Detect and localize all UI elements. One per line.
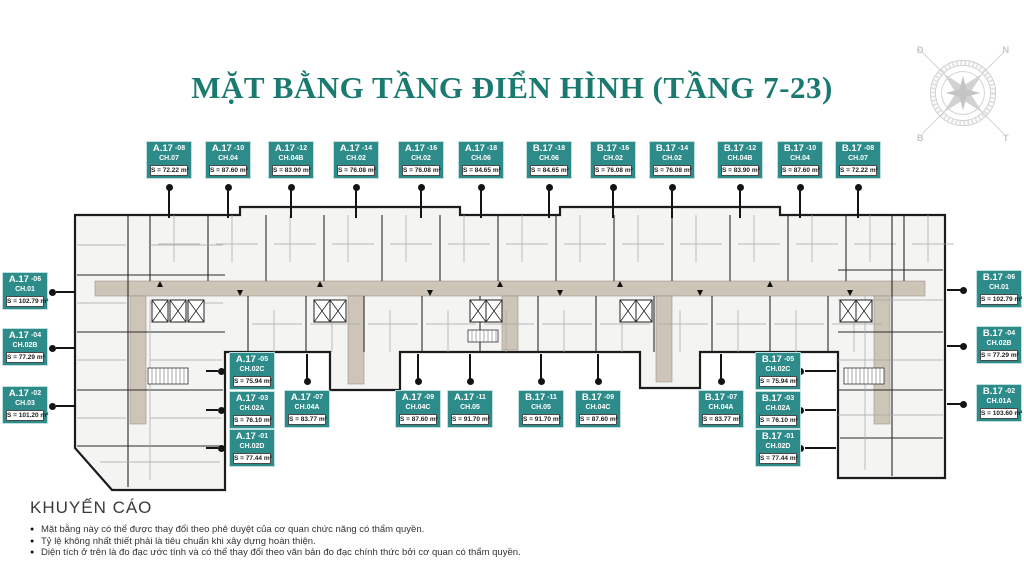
unit-label-B17-05: B.17-05CH.02CS = 75.94 m² [755, 352, 801, 390]
apartment-number: CH.04B [719, 155, 761, 163]
unit-area: S = 76.08 m² [337, 165, 375, 176]
unit-label-A17-03: A.17-03CH.02AS = 76.10 m² [229, 391, 275, 429]
unit-area: S = 87.60 m² [781, 165, 819, 176]
apartment-number: CH.02D [231, 443, 273, 451]
unit-area: S = 77.44 m² [233, 453, 271, 464]
unit-code: A.17-14 [335, 144, 377, 154]
unit-code: A.17-06 [4, 275, 46, 285]
apartment-number: CH.06 [528, 155, 570, 163]
leader-line [947, 345, 963, 347]
unit-code: B.17-07 [700, 393, 742, 403]
unit-label-A17-05: A.17-05CH.02CS = 75.94 m² [229, 352, 275, 390]
unit-code: A.17-16 [400, 144, 442, 154]
apartment-number: CH.02B [978, 340, 1020, 348]
apartment-number: CH.04A [700, 404, 742, 412]
unit-area: S = 87.60 m² [209, 165, 247, 176]
compass-letter-bac: B [917, 133, 924, 143]
unit-area: S = 101.20 m² [6, 410, 44, 421]
unit-label-B17-07: B.17-07CH.04AS = 83.77 m² [698, 390, 744, 428]
apartment-number: CH.01 [4, 286, 46, 294]
leader-line [56, 405, 76, 407]
unit-area: S = 76.10 m² [233, 415, 271, 426]
unit-code: B.17-08 [837, 144, 879, 154]
unit-area: S = 76.08 m² [653, 165, 691, 176]
unit-label-B17-16: B.17-16CH.02S = 76.08 m² [590, 141, 636, 179]
leader-line [720, 354, 722, 379]
leader-line [355, 190, 357, 218]
leader-line [671, 190, 673, 218]
unit-code: A.17-12 [270, 144, 312, 154]
unit-label-B17-04: B.17-04CH.02BS = 77.29 m² [976, 326, 1022, 364]
unit-label-A17-08: A.17-08CH.07S = 72.22 m² [146, 141, 192, 179]
unit-area: S = 77.29 m² [980, 350, 1018, 361]
unit-label-A17-04: A.17-04CH.02BS = 77.29 m² [2, 328, 48, 366]
unit-code: A.17-03 [231, 394, 273, 404]
unit-code: A.17-10 [207, 144, 249, 154]
unit-label-B17-01: B.17-01CH.02DS = 77.44 m² [755, 429, 801, 467]
unit-label-A17-10: A.17-10CH.04S = 87.60 m² [205, 141, 251, 179]
leader-line [206, 409, 218, 411]
unit-code: B.17-14 [651, 144, 693, 154]
unit-code: B.17-11 [520, 393, 562, 403]
leader-line [56, 347, 76, 349]
apartment-number: CH.07 [837, 155, 879, 163]
unit-code: A.17-11 [449, 393, 491, 403]
unit-code: A.17-02 [4, 389, 46, 399]
apartment-number: CH.02 [592, 155, 634, 163]
compass-icon: Đ N B T [912, 42, 1014, 144]
leader-line [805, 447, 836, 449]
unit-code: B.17-12 [719, 144, 761, 154]
apartment-number: CH.01 [978, 284, 1020, 292]
leader-dot [218, 368, 225, 375]
leader-dot [218, 407, 225, 414]
unit-area: S = 84.65 m² [462, 165, 500, 176]
unit-area: S = 77.29 m² [6, 352, 44, 363]
leader-line [739, 190, 741, 218]
disclaimer-item: Mặt bằng này có thể được thay đổi theo p… [30, 524, 521, 536]
compass-letter-tay: T [1003, 133, 1009, 143]
leader-line [548, 190, 550, 218]
leader-line [206, 447, 218, 449]
unit-code: B.17-10 [779, 144, 821, 154]
unit-label-A17-07: A.17-07CH.04AS = 83.77 m² [284, 390, 330, 428]
disclaimer-item: Tỷ lệ không nhất thiết phải là tiêu chuẩ… [30, 536, 521, 548]
leader-line [420, 190, 422, 218]
unit-area: S = 75.94 m² [233, 376, 271, 387]
leader-dot [49, 289, 56, 296]
apartment-number: CH.04A [286, 404, 328, 412]
building-floor-plan [0, 0, 1024, 564]
unit-area: S = 72.22 m² [839, 165, 877, 176]
unit-code: B.17-16 [592, 144, 634, 154]
unit-code: B.17-02 [978, 387, 1020, 397]
apartment-number: CH.02 [400, 155, 442, 163]
apartment-number: CH.02B [4, 342, 46, 350]
unit-area: S = 77.44 m² [759, 453, 797, 464]
unit-code: B.17-05 [757, 355, 799, 365]
unit-code: B.17-03 [757, 394, 799, 404]
apartment-number: CH.04 [207, 155, 249, 163]
unit-label-A17-11: A.17-11CH.05S = 91.70 m² [447, 390, 493, 428]
disclaimer-heading: KHUYẾN CÁO [30, 498, 521, 518]
unit-label-A17-06: A.17-06CH.01S = 102.79 m² [2, 272, 48, 310]
compass-letter-north: N [1003, 45, 1010, 55]
leader-dot [49, 345, 56, 352]
unit-code: A.17-04 [4, 331, 46, 341]
leader-line [306, 354, 308, 379]
unit-label-B17-12: B.17-12CH.04BS = 83.90 m² [717, 141, 763, 179]
floor-plan-page: MẶT BẰNG TẦNG ĐIỂN HÌNH (TẦNG 7-23) Đ N … [0, 0, 1024, 564]
apartment-number: CH.02 [335, 155, 377, 163]
unit-label-B17-09: B.17-09CH.04CS = 87.60 m² [575, 390, 621, 428]
leader-line [597, 354, 599, 379]
unit-label-A17-02: A.17-02CH.03S = 101.20 m² [2, 386, 48, 424]
unit-area: S = 76.10 m² [759, 415, 797, 426]
unit-label-A17-14: A.17-14CH.02S = 76.08 m² [333, 141, 379, 179]
unit-label-B17-06: B.17-06CH.01S = 102.79 m² [976, 270, 1022, 308]
unit-code: A.17-05 [231, 355, 273, 365]
unit-area: S = 72.22 m² [150, 165, 188, 176]
unit-code: B.17-04 [978, 329, 1020, 339]
compass-letter-dong: Đ [917, 45, 924, 55]
unit-code: A.17-07 [286, 393, 328, 403]
unit-area: S = 84.65 m² [530, 165, 568, 176]
leader-line [799, 190, 801, 218]
leader-line [168, 190, 170, 218]
unit-label-B17-08: B.17-08CH.07S = 72.22 m² [835, 141, 881, 179]
apartment-number: CH.02 [651, 155, 693, 163]
unit-area: S = 102.79 m² [6, 296, 44, 307]
apartment-number: CH.02A [231, 405, 273, 413]
unit-code: B.17-09 [577, 393, 619, 403]
unit-label-B17-18: B.17-18CH.06S = 84.65 m² [526, 141, 572, 179]
apartment-number: CH.02C [757, 366, 799, 374]
leader-line [469, 354, 471, 379]
disclaimer: KHUYẾN CÁO Mặt bằng này có thể được thay… [30, 498, 521, 559]
leader-line [612, 190, 614, 218]
unit-area: S = 83.77 m² [702, 414, 740, 425]
unit-area: S = 103.60 m² [980, 408, 1018, 419]
disclaimer-list: Mặt bằng này có thể được thay đổi theo p… [30, 524, 521, 559]
leader-line [805, 409, 836, 411]
leader-line [227, 190, 229, 218]
unit-label-A17-09: A.17-09CH.04CS = 87.60 m² [395, 390, 441, 428]
leader-line [290, 190, 292, 218]
unit-area: S = 83.77 m² [288, 414, 326, 425]
leader-dot [49, 403, 56, 410]
unit-area: S = 75.94 m² [759, 376, 797, 387]
leader-line [56, 291, 76, 293]
unit-area: S = 83.90 m² [272, 165, 310, 176]
unit-code: B.17-01 [757, 432, 799, 442]
unit-code: A.17-18 [460, 144, 502, 154]
disclaimer-item: Diện tích ở trên là đo đạc ước tính và c… [30, 547, 521, 559]
leader-line [540, 354, 542, 379]
apartment-number: CH.04 [779, 155, 821, 163]
unit-label-A17-12: A.17-12CH.04BS = 83.90 m² [268, 141, 314, 179]
apartment-number: CH.04C [397, 404, 439, 412]
unit-code: B.17-06 [978, 273, 1020, 283]
apartment-number: CH.02A [757, 405, 799, 413]
apartment-number: CH.07 [148, 155, 190, 163]
unit-label-A17-16: A.17-16CH.02S = 76.08 m² [398, 141, 444, 179]
unit-code: B.17-18 [528, 144, 570, 154]
apartment-number: CH.02C [231, 366, 273, 374]
unit-code: A.17-08 [148, 144, 190, 154]
unit-area: S = 91.70 m² [522, 414, 560, 425]
leader-line [947, 403, 963, 405]
unit-area: S = 87.60 m² [579, 414, 617, 425]
unit-code: A.17-09 [397, 393, 439, 403]
unit-area: S = 76.08 m² [594, 165, 632, 176]
unit-area: S = 87.60 m² [399, 414, 437, 425]
apartment-number: CH.03 [4, 400, 46, 408]
unit-label-B17-03: B.17-03CH.02AS = 76.10 m² [755, 391, 801, 429]
leader-line [417, 354, 419, 379]
unit-label-B17-11: B.17-11CH.05S = 91.70 m² [518, 390, 564, 428]
unit-label-B17-10: B.17-10CH.04S = 87.60 m² [777, 141, 823, 179]
unit-area: S = 102.79 m² [980, 294, 1018, 305]
apartment-number: CH.02D [757, 443, 799, 451]
unit-area: S = 76.08 m² [402, 165, 440, 176]
apartment-number: CH.06 [460, 155, 502, 163]
unit-label-B17-14: B.17-14CH.02S = 76.08 m² [649, 141, 695, 179]
leader-line [480, 190, 482, 218]
leader-line [206, 370, 218, 372]
apartment-number: CH.01A [978, 398, 1020, 406]
apartment-number: CH.05 [520, 404, 562, 412]
leader-dot [218, 445, 225, 452]
leader-line [947, 289, 963, 291]
apartment-number: CH.04C [577, 404, 619, 412]
apartment-number: CH.05 [449, 404, 491, 412]
leader-line [857, 190, 859, 218]
unit-code: A.17-01 [231, 432, 273, 442]
unit-label-A17-18: A.17-18CH.06S = 84.65 m² [458, 141, 504, 179]
leader-line [805, 370, 836, 372]
unit-label-B17-02: B.17-02CH.01AS = 103.60 m² [976, 384, 1022, 422]
unit-area: S = 91.70 m² [451, 414, 489, 425]
apartment-number: CH.04B [270, 155, 312, 163]
unit-area: S = 83.90 m² [721, 165, 759, 176]
unit-label-A17-01: A.17-01CH.02DS = 77.44 m² [229, 429, 275, 467]
